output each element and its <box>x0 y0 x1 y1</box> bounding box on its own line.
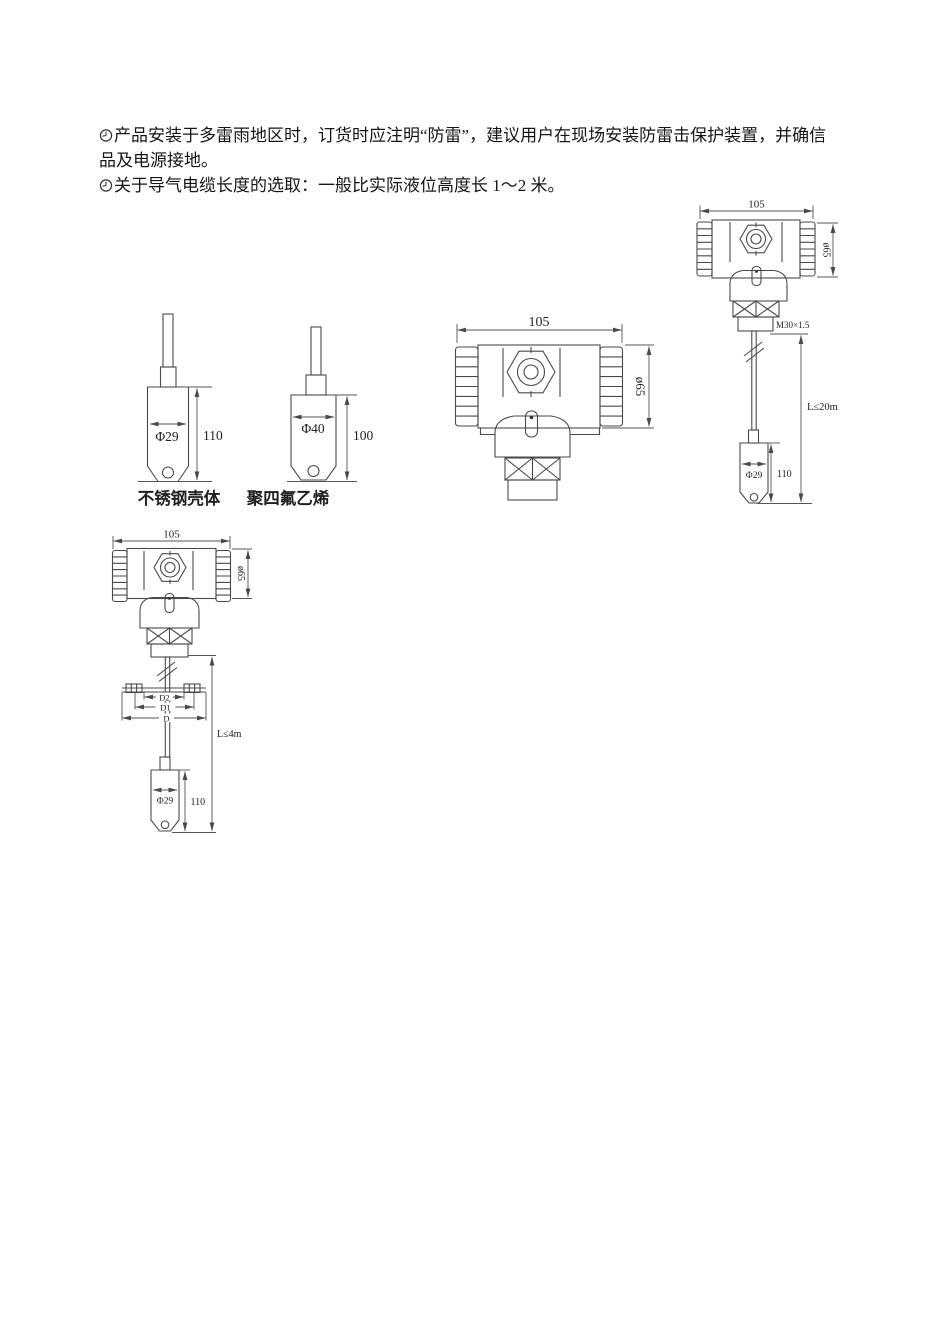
hex-cap <box>740 223 772 256</box>
probe-cable <box>163 314 173 367</box>
dome-slot <box>752 267 761 286</box>
probe2-diameter-dim: Φ40 <box>301 421 325 436</box>
cable <box>752 331 756 430</box>
cable-length-dim: L≤4m <box>217 729 242 740</box>
left-fins <box>697 222 712 276</box>
probe-hole <box>750 494 758 502</box>
cable-gland <box>505 458 560 480</box>
housing-drawing-small <box>697 220 815 503</box>
hex-cap <box>507 347 555 397</box>
flange <box>122 684 206 693</box>
probe-height-dim: 110 <box>191 797 206 808</box>
diagram-cable-type: 105 ø65 M30×1.5 L≤20m Φ29 110 <box>688 192 873 514</box>
housing-diameter-dim: ø65 <box>633 377 648 397</box>
clock-marker-icon <box>99 128 114 142</box>
cable-gland <box>733 301 779 317</box>
probe-hole <box>161 821 169 829</box>
probe2-height-dim: 100 <box>353 428 374 443</box>
diagram-housing-front-view: 105 ø65 <box>450 303 665 505</box>
probe-diameter-dim: Φ29 <box>157 797 174 807</box>
probe-neck <box>306 375 326 395</box>
thread-connector <box>508 480 557 500</box>
probe-height-dim: 110 <box>777 469 792 480</box>
cable-length-dim: L≤20m <box>807 402 838 413</box>
right-fins <box>600 347 623 426</box>
right-fins <box>216 551 231 602</box>
thread-dim: M30×1.5 <box>776 320 810 330</box>
housing-drawing-small <box>113 549 231 832</box>
clock-marker-icon <box>99 178 114 192</box>
cable-break-mark <box>157 662 177 682</box>
flange-d2-dim: D2 <box>159 693 169 703</box>
probe-hole <box>308 466 319 477</box>
note-text-2: 品及电源接地。 <box>99 151 218 170</box>
note-text-1: 产品安装于多雷雨地区时，订货时应注明“防雷”，建议用户在现场安装防雷击保护装置，… <box>114 126 826 145</box>
diameter-dim: ø65 <box>235 566 246 581</box>
probe2-label: 聚四氟乙烯 <box>246 488 330 508</box>
installation-notes: 产品安装于多雷雨地区时，订货时应注明“防雷”，建议用户在现场安装防雷击保护装置，… <box>99 123 879 198</box>
width-dim: 105 <box>748 199 765 211</box>
probe1-height-dim: 110 <box>203 428 223 443</box>
thread-nut <box>151 644 188 657</box>
dome-slot <box>165 594 174 613</box>
probe-cable <box>311 327 321 375</box>
cable-gland <box>147 628 192 644</box>
diameter-dim: ø65 <box>821 243 832 258</box>
probe-diameter-dim: Φ29 <box>746 471 763 481</box>
document-page: 产品安装于多雷雨地区时，订货时应注明“防雷”，建议用户在现场安装防雷击保护装置，… <box>0 0 950 1344</box>
flange-d-dim: D <box>163 714 169 724</box>
probe-neck <box>160 757 170 770</box>
note-line-2: 品及电源接地。 <box>99 148 879 173</box>
note-line-1: 产品安装于多雷雨地区时，订货时应注明“防雷”，建议用户在现场安装防雷击保护装置，… <box>99 123 879 148</box>
cable-break-mark <box>744 342 764 362</box>
left-fins <box>456 347 479 426</box>
probe-body <box>291 395 336 480</box>
probe1-label: 不锈钢壳体 <box>138 488 221 508</box>
ptfe-probe-drawing: Φ40 100 聚四氟乙烯 <box>246 327 374 508</box>
diagram-probe-dimensions: Φ29 110 不锈钢壳体 Φ40 100 聚四氟乙烯 <box>130 295 380 520</box>
probe-neck <box>161 367 177 387</box>
diagram-flange-type: 105 ø65 D2 D1 D L≤4m Φ29 110 <box>98 522 256 842</box>
probe-hole <box>163 467 174 478</box>
dome-slot <box>526 411 538 437</box>
note-text-3: 关于导气电缆长度的选取：一般比实际液位高度长 1～2 米。 <box>114 176 565 195</box>
width-dim: 105 <box>163 529 180 541</box>
flange-d1-dim: D1 <box>160 703 170 713</box>
housing-width-dim: 105 <box>529 315 550 330</box>
housing-drawing <box>456 345 623 500</box>
left-fins <box>113 551 128 602</box>
probe1-diameter-dim: Φ29 <box>155 429 179 444</box>
thread-nut <box>738 317 773 331</box>
right-fins <box>800 222 815 276</box>
stainless-probe-drawing: Φ29 110 不锈钢壳体 <box>138 314 223 508</box>
probe-neck <box>749 430 759 443</box>
hex-cap <box>154 551 186 584</box>
